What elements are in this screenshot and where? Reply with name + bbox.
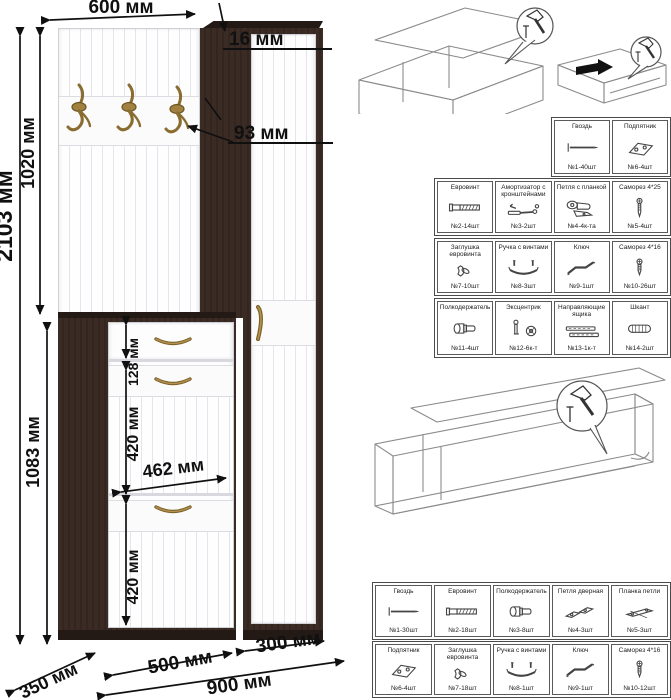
- glide-icon: [622, 130, 659, 164]
- part-qty: №4-4к-та: [567, 223, 595, 230]
- part-qty: №11-4шт: [451, 345, 479, 352]
- part-cell: Подпятник№6-4шт: [375, 644, 432, 695]
- dim-panel-height: 1020 мм: [18, 117, 38, 189]
- part-qty: №12-6к-т: [509, 345, 537, 352]
- parts-table-1-row-1: Гвоздь№1-40штПодпятник№6-4шт: [551, 117, 671, 177]
- part-label: Саморез 4*16: [619, 244, 661, 251]
- part-label: Гвоздь: [393, 588, 413, 595]
- part-qty: №5-3шт: [627, 627, 652, 634]
- part-qty: №3-8шт: [509, 627, 534, 634]
- parts-table-1-row-2: Евровинт№2-14штАмортизатор с кронштейнам…: [434, 178, 671, 236]
- assembly-diagram-drawer: [540, 35, 671, 117]
- part-qty: №7-10шт: [451, 283, 480, 290]
- part-qty: №9-1шт: [569, 283, 594, 290]
- dim-cabinet-height: 1083 мм: [23, 416, 43, 488]
- dim-flap2-height: 420 мм: [125, 550, 142, 605]
- dowel-icon: [621, 311, 658, 345]
- part-cell: Гвоздь№1-40шт: [554, 120, 610, 174]
- part-qty: №10-12шт: [623, 685, 655, 692]
- part-qty: №8-3шт: [511, 283, 536, 290]
- part-qty: №10-26шт: [624, 283, 656, 290]
- screw-4x16-icon: [621, 251, 658, 283]
- part-cell: Подпятник№6-4шт: [612, 120, 668, 174]
- part-label: Планка петли: [619, 588, 660, 595]
- part-qty: №3-2шт: [511, 223, 536, 230]
- part-label: Ключ: [574, 244, 590, 251]
- dim-depth: 350 мм: [16, 658, 80, 700]
- part-qty: №9-1шт: [568, 685, 593, 692]
- part-label: Направляющие ящика: [556, 304, 608, 319]
- parts-table-2-row-2: Подпятник№6-4штЗаглушка евровинта№7-18шт…: [372, 641, 671, 698]
- part-label: Заглушка евровинта: [439, 244, 491, 259]
- assembly-instruction-sheet: 600 мм 2103 мм 1020 мм 1083 мм 128 мм 42…: [0, 0, 671, 700]
- part-cell: Ключ№9-1шт: [552, 644, 609, 695]
- part-qty: №8-1шт: [509, 685, 534, 692]
- parts-table-1-row-4: Полкодержатель№11-4штЭксцентрик№12-6к-тН…: [434, 298, 671, 358]
- part-label: Петля дверная: [558, 588, 603, 595]
- dim-total-height: 2103 мм: [0, 170, 17, 262]
- part-cell: Саморез 4*16№10-12шт: [611, 644, 668, 695]
- part-cell: Шкант№14-2шт: [612, 301, 668, 355]
- dim-hook-offset: 93 мм: [234, 123, 289, 144]
- handle-icon: [505, 251, 542, 283]
- part-cell: Петля дверная№4-3шт: [552, 585, 609, 637]
- part-cell: Петля с планкой№4-4к-та: [554, 181, 610, 233]
- screw-4x25-icon: [621, 191, 658, 223]
- part-qty: №5-4шт: [627, 223, 652, 230]
- part-label: Подпятник: [624, 123, 656, 130]
- part-label: Гвоздь: [572, 123, 592, 130]
- part-qty: №2-14шт: [451, 223, 480, 230]
- hinge-strip-icon: [621, 595, 658, 627]
- part-cell: Полкодержатель№11-4шт: [437, 301, 493, 355]
- assembly-diagram-wardrobe: [345, 362, 671, 580]
- part-cell: Гвоздь№1-30шт: [375, 585, 432, 637]
- nail-icon: [385, 595, 422, 627]
- handle-icon: [503, 654, 540, 685]
- part-label: Саморез 4*25: [619, 184, 661, 191]
- screw-4x16-icon: [621, 654, 658, 685]
- euroscrew-icon: [444, 595, 481, 627]
- assembly-diagram-carcass: [345, 2, 565, 114]
- part-qty: №7-18шт: [448, 685, 477, 692]
- part-label: Амортизатор с кронштейнами: [497, 184, 549, 199]
- parts-table-1-row-3: Заглушка евровинта№7-10штРучка с винтами…: [434, 238, 671, 296]
- part-label: Эксцентрик: [506, 304, 541, 311]
- part-cell: Саморез 4*25№5-4шт: [612, 181, 668, 233]
- part-qty: №13-1к-т: [567, 345, 595, 352]
- part-qty: №6-4шт: [628, 164, 653, 171]
- part-label: Ручка с винтами: [497, 647, 547, 654]
- part-cell: Ручка с винтами№8-1шт: [493, 644, 550, 695]
- part-cell: Заглушка евровинта№7-10шт: [437, 241, 493, 293]
- dim-top-width: 600 мм: [88, 0, 153, 18]
- part-cell: Полкодержатель№3-8шт: [493, 585, 550, 637]
- dim-panel-thickness: 16 мм: [229, 29, 284, 50]
- part-label: Полкодержатель: [440, 304, 491, 311]
- hinge-plate-icon: [563, 191, 600, 223]
- part-label: Саморез 4*16: [619, 647, 661, 654]
- drawer-slides-icon: [563, 319, 600, 345]
- part-qty: №1-30шт: [389, 627, 418, 634]
- part-label: Полкодержатель: [496, 588, 547, 595]
- part-label: Шкант: [630, 304, 649, 311]
- strut-icon: [505, 199, 542, 223]
- part-label: Евровинт: [448, 588, 477, 595]
- part-cell: Направляющие ящика№13-1к-т: [554, 301, 610, 355]
- dim-inner-width: 462 мм: [141, 454, 205, 481]
- shelf-pin-icon: [503, 595, 540, 627]
- dim-flap1-height: 420 мм: [125, 407, 142, 462]
- dim-drawer-height: 128 мм: [125, 338, 141, 386]
- dim-cabinet-width: 500 мм: [146, 647, 214, 679]
- part-label: Евровинт: [451, 184, 480, 191]
- key-icon: [563, 251, 600, 283]
- part-cell: Евровинт№2-18шт: [434, 585, 491, 637]
- nail-icon: [564, 130, 601, 164]
- eccentric-icon: [505, 311, 542, 345]
- part-cell: Амортизатор с кронштейнами№3-2шт: [495, 181, 551, 233]
- part-cell: Планка петли№5-3шт: [611, 585, 668, 637]
- part-label: Подпятник: [387, 647, 419, 654]
- part-label: Ручка с винтами: [499, 244, 549, 251]
- parts-table-2-row-1: Гвоздь№1-30штЕвровинт№2-18штПолкодержате…: [372, 582, 671, 640]
- glide-icon: [385, 654, 422, 685]
- part-cell: Ключ№9-1шт: [554, 241, 610, 293]
- part-label: Петля с планкой: [557, 184, 607, 191]
- part-cell: Эксцентрик№12-6к-т: [495, 301, 551, 355]
- part-cell: Заглушка евровинта№7-18шт: [434, 644, 491, 695]
- part-label: Заглушка евровинта: [436, 647, 489, 662]
- part-qty: №4-3шт: [568, 627, 593, 634]
- cap-icon: [444, 662, 481, 685]
- dim-total-width: 900 мм: [206, 670, 273, 700]
- shelf-pin-icon: [447, 311, 484, 345]
- part-qty: №14-2шт: [626, 345, 655, 352]
- dimension-overlay: 600 мм 2103 мм 1020 мм 1083 мм 128 мм 42…: [0, 0, 352, 700]
- part-qty: №2-18шт: [448, 627, 477, 634]
- part-label: Ключ: [573, 647, 589, 654]
- part-cell: Ручка с винтами№8-3шт: [495, 241, 551, 293]
- dim-wardrobe-width: 300 мм: [255, 628, 322, 658]
- part-qty: №6-4шт: [391, 685, 416, 692]
- part-qty: №1-40шт: [568, 164, 597, 171]
- euroscrew-icon: [447, 191, 484, 223]
- part-cell: Евровинт№2-14шт: [437, 181, 493, 233]
- key-icon: [562, 654, 599, 685]
- cap-icon: [447, 259, 484, 283]
- part-cell: Саморез 4*16№10-26шт: [612, 241, 668, 293]
- door-hinge-icon: [562, 595, 599, 627]
